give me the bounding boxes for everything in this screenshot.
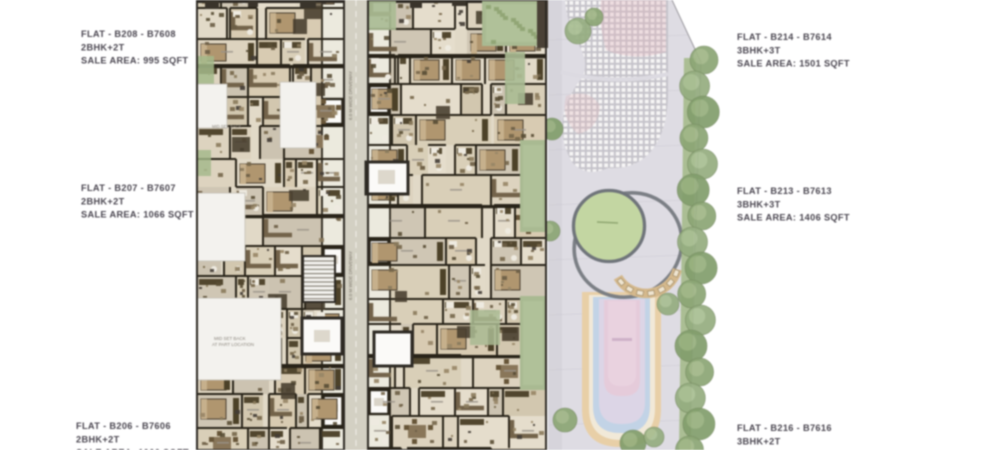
svg-text:SALE AREA: 1501 SQFT: SALE AREA: 1501 SQFT bbox=[737, 59, 850, 69]
svg-text:FLAT - B216 - B7616: FLAT - B216 - B7616 bbox=[737, 423, 832, 433]
svg-text:MID SET BACK: MID SET BACK bbox=[214, 336, 246, 341]
svg-text:SALE AREA: 1406 SQFT: SALE AREA: 1406 SQFT bbox=[737, 213, 850, 223]
svg-text:SALE AREA: 995 SQFT: SALE AREA: 995 SQFT bbox=[81, 56, 188, 66]
svg-text:2BHK+2T: 2BHK+2T bbox=[81, 43, 125, 53]
svg-text:FLAT - B206 - B7606: FLAT - B206 - B7606 bbox=[76, 421, 171, 431]
svg-text:3BHK+3T: 3BHK+3T bbox=[737, 46, 781, 56]
svg-text:FLAT - B214 - B7614: FLAT - B214 - B7614 bbox=[737, 32, 832, 42]
svg-text:3BHK+3T: 3BHK+3T bbox=[737, 200, 781, 210]
svg-text:AT PART LOCATION: AT PART LOCATION bbox=[212, 342, 254, 347]
svg-text:6.0 M WIDE DRIVEWAY: 6.0 M WIDE DRIVEWAY bbox=[348, 251, 353, 300]
svg-text:SALE AREA: 1066 SQFT: SALE AREA: 1066 SQFT bbox=[81, 210, 194, 220]
svg-text:FLAT - B208 - B7608: FLAT - B208 - B7608 bbox=[81, 29, 176, 39]
svg-text:FLAT - B207 - B7607: FLAT - B207 - B7607 bbox=[81, 183, 176, 193]
svg-text:MID SET BACK: MID SET BACK bbox=[212, 124, 242, 129]
svg-text:2BHK+2T: 2BHK+2T bbox=[81, 197, 125, 207]
svg-text:3BHK+2T: 3BHK+2T bbox=[737, 437, 781, 447]
svg-text:2BHK+2T: 2BHK+2T bbox=[76, 435, 120, 445]
svg-text:FLAT - B213 - B7613: FLAT - B213 - B7613 bbox=[737, 186, 832, 196]
svg-text:6.0 M WIDE DRIVEWAY: 6.0 M WIDE DRIVEWAY bbox=[348, 71, 353, 120]
